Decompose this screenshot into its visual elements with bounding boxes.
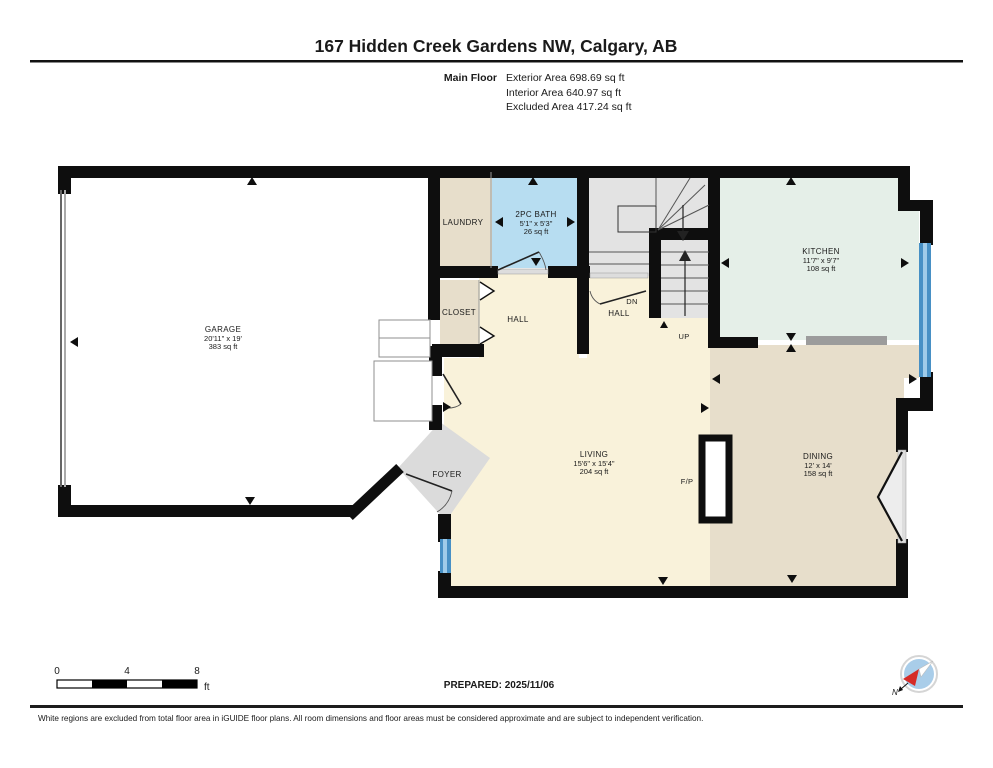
- interior-area-line: Interior Area 640.97 sq ft: [506, 87, 621, 99]
- fireplace: [702, 438, 729, 520]
- exterior-area-line: Exterior Area 698.69 sq ft: [506, 72, 625, 84]
- kitchen-label: KITCHEN: [802, 247, 840, 256]
- bath-label: 2PC BATH: [515, 210, 556, 219]
- compass-icon: N: [892, 656, 937, 697]
- scale-bar: 0 4 8 ft: [54, 666, 210, 693]
- scale-tick-8: 8: [194, 666, 200, 677]
- excluded-area-line: Excluded Area 417.24 sq ft: [506, 101, 632, 113]
- dining-area: 158 sq ft: [804, 469, 834, 478]
- floor-plan-page: 167 Hidden Creek Gardens NW, Calgary, AB…: [0, 0, 993, 768]
- bath-area: 26 sq ft: [524, 227, 550, 236]
- scale-unit: ft: [204, 682, 210, 693]
- disclaimer-text: White regions are excluded from total fl…: [38, 714, 703, 723]
- scale-tick-0: 0: [54, 666, 60, 677]
- hall-left-label: HALL: [507, 315, 529, 324]
- living-label: LIVING: [580, 450, 608, 459]
- page-title: 167 Hidden Creek Gardens NW, Calgary, AB: [315, 36, 678, 56]
- fireplace-label: F/P: [681, 477, 694, 486]
- living-area: 204 sq ft: [580, 467, 610, 476]
- stairs-up-label: UP: [678, 332, 689, 341]
- scale-tick-4: 4: [124, 666, 130, 677]
- kitchen-area: 108 sq ft: [807, 264, 837, 273]
- laundry-label: LAUNDRY: [443, 218, 484, 227]
- compass-north-label: N: [892, 688, 898, 697]
- garage-steps: [374, 320, 432, 421]
- garage-label: GARAGE: [205, 325, 241, 334]
- footer-divider: [30, 705, 963, 708]
- hall-right-label: HALL: [608, 309, 630, 318]
- closet-label: CLOSET: [442, 308, 476, 317]
- stairs-dn-label: DN: [626, 297, 637, 306]
- garage-area: 383 sq ft: [209, 342, 239, 351]
- prepared-date: PREPARED: 2025/11/06: [444, 680, 555, 691]
- floor-plan-canvas: 167 Hidden Creek Gardens NW, Calgary, AB…: [0, 0, 993, 768]
- foyer-label: FOYER: [432, 470, 461, 479]
- floor-label: Main Floor: [444, 72, 497, 84]
- kitchen-counter: [806, 336, 887, 345]
- dining-label: DINING: [803, 452, 833, 461]
- header-divider: [30, 60, 963, 63]
